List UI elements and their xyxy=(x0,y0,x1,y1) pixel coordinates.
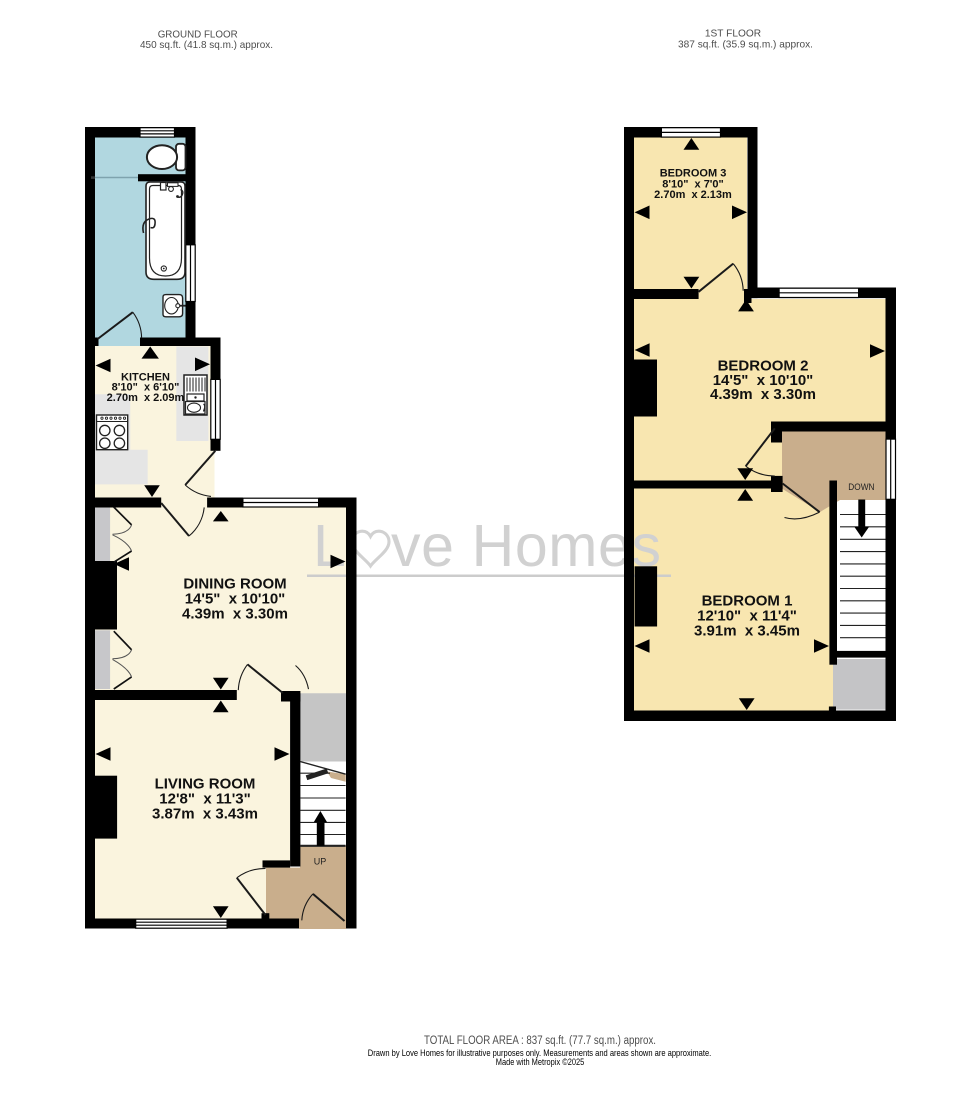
svg-text:387 sq.ft. (35.9 sq.m.) approx: 387 sq.ft. (35.9 sq.m.) approx. xyxy=(678,39,813,51)
svg-text:DOWN: DOWN xyxy=(848,482,874,492)
svg-text:4.39m x 3.30m: 4.39m x 3.30m xyxy=(182,606,288,623)
svg-text:ve Homes: ve Homes xyxy=(391,513,661,579)
svg-text:Made with Metropix ©2025: Made with Metropix ©2025 xyxy=(496,1057,585,1067)
svg-text:450 sq.ft. (41.8 sq.m.) approx: 450 sq.ft. (41.8 sq.m.) approx. xyxy=(140,39,273,51)
svg-text:4.39m x 3.30m: 4.39m x 3.30m xyxy=(710,386,816,403)
svg-text:2.70m x 2.09m: 2.70m x 2.09m xyxy=(107,392,185,404)
svg-text:1ST FLOOR: 1ST FLOOR xyxy=(705,27,762,39)
svg-text:TOTAL FLOOR AREA : 837 sq.ft.: TOTAL FLOOR AREA : 837 sq.ft. (77.7 sq.m… xyxy=(424,1035,656,1047)
svg-text:3.87m x 3.43m: 3.87m x 3.43m xyxy=(152,806,258,823)
svg-text:3.91m x 3.45m: 3.91m x 3.45m xyxy=(694,623,800,640)
svg-text:UP: UP xyxy=(314,856,327,866)
svg-text:2.70m x 2.13m: 2.70m x 2.13m xyxy=(654,189,732,201)
svg-text:L: L xyxy=(313,513,346,579)
